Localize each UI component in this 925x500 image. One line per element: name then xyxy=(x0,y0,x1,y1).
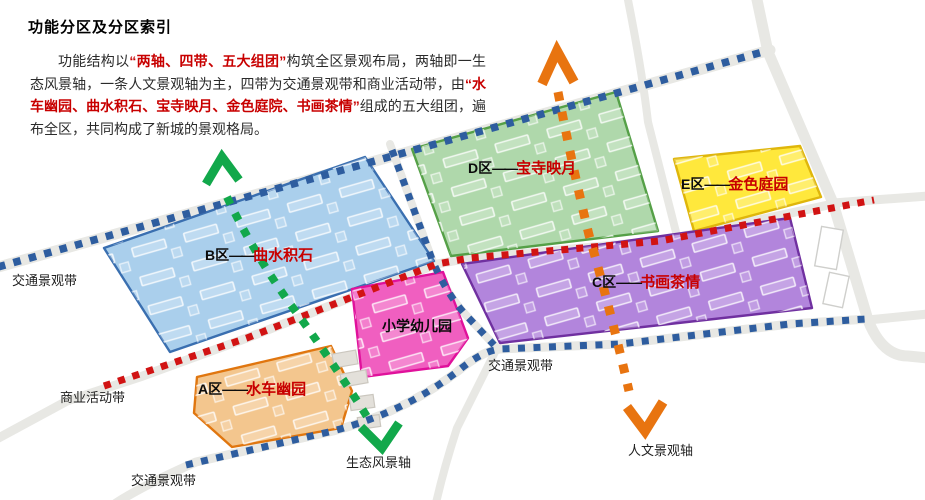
human-axis-arrow-down-icon xyxy=(627,402,663,431)
building-block xyxy=(823,272,849,307)
zone-d-dash: —— xyxy=(492,160,516,176)
zone-e-name: 金色庭园 xyxy=(728,176,788,193)
traffic-belt-label-mid: 交通景观带 xyxy=(488,355,553,374)
commercial-belt-label: 商业活动带 xyxy=(60,387,125,406)
zone-a-code: A区 xyxy=(198,381,222,397)
page-title: 功能分区及分区索引 xyxy=(28,16,172,37)
eco-axis-label: 生态风景轴 xyxy=(346,452,411,471)
building-block xyxy=(815,226,844,269)
zone-a-name: 水车幽园 xyxy=(246,381,306,398)
zone-a-dash: —— xyxy=(222,381,246,397)
zone-d-code: D区 xyxy=(468,160,492,176)
intro-seg1: 功能结构以 xyxy=(58,53,129,69)
zone-b-code: B区 xyxy=(205,247,229,263)
intro-paragraph: 功能结构以“两轴、四带、五大组团”构筑全区景观布局，两轴即一生态风景轴，一条人文… xyxy=(30,50,486,140)
zone-b-dash: —— xyxy=(229,247,253,263)
human-axis-arrow-up-icon xyxy=(542,51,574,84)
human-axis-label: 人文景观轴 xyxy=(628,440,693,459)
plan-page: 功能分区及分区索引 功能结构以“两轴、四带、五大组团”构筑全区景观布局，两轴即一… xyxy=(0,0,925,500)
zone-c-name: 书画茶情 xyxy=(640,274,700,291)
zone-e-dash: —— xyxy=(704,176,728,192)
zone-a-label: A区——水车幽园 xyxy=(198,378,306,399)
zone-c-code: C区 xyxy=(592,274,616,290)
zone-d-name: 宝寺映月 xyxy=(516,160,576,177)
eco-axis-arrow-up-icon xyxy=(206,157,239,184)
traffic-belt-label-left: 交通景观带 xyxy=(12,270,77,289)
zone-e-label: E区——金色庭园 xyxy=(681,173,788,194)
zone-c-dash: —— xyxy=(616,274,640,290)
zone-d-label: D区——宝寺映月 xyxy=(468,157,576,178)
zone-e-code: E区 xyxy=(681,176,704,192)
intro-highlight-structure: “两轴、四带、五大组团” xyxy=(129,53,286,69)
zone-b-label: B区——曲水积石 xyxy=(205,244,313,265)
zone-c-label: C区——书画茶情 xyxy=(592,271,700,292)
road-right-branch-lower xyxy=(868,314,925,320)
zone-b-name: 曲水积石 xyxy=(253,247,313,264)
traffic-belt-label-bottom: 交通景观带 xyxy=(131,470,196,489)
school-zone-label: 小学幼儿园 xyxy=(382,316,452,336)
